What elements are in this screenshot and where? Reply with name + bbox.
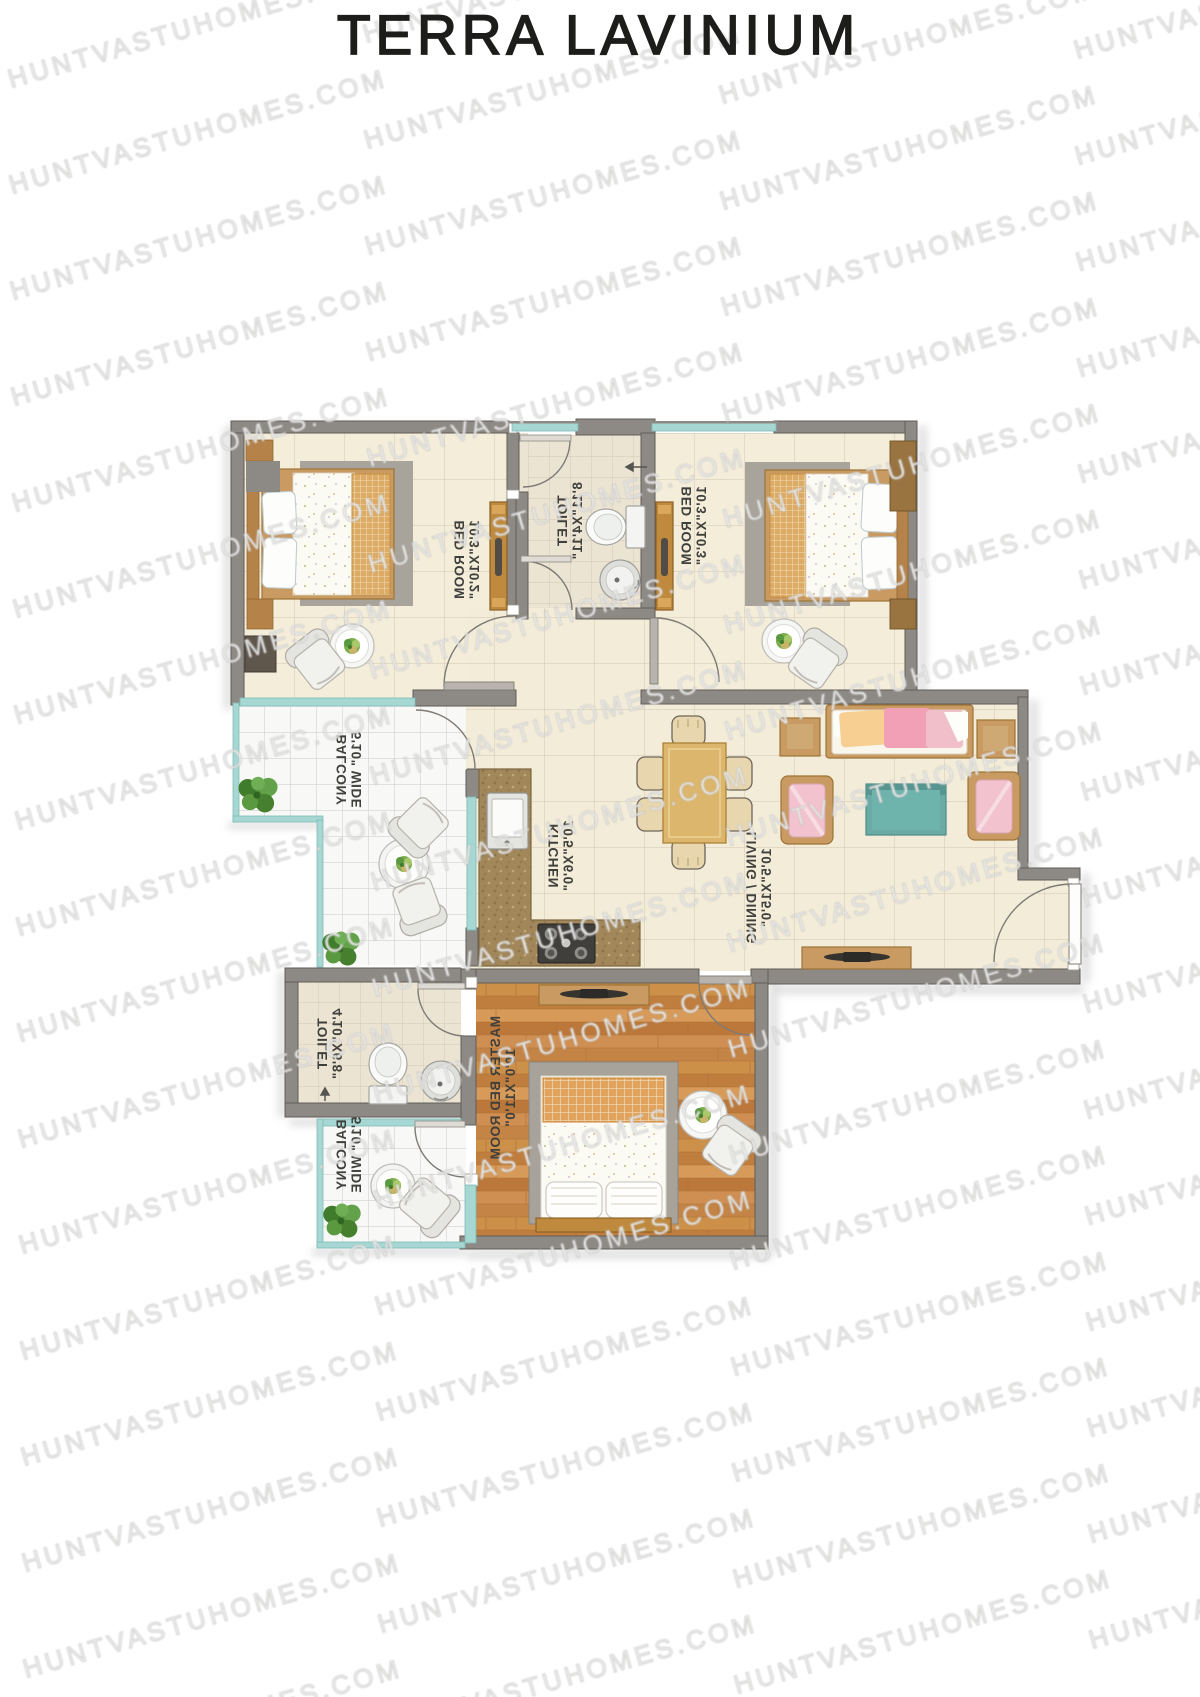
svg-text:TERRA LAVINIUM: TERRA LAVINIUM: [337, 3, 860, 66]
svg-text:BED ROOM10'3"X10'3": BED ROOM10'3"X10'3": [679, 486, 709, 565]
